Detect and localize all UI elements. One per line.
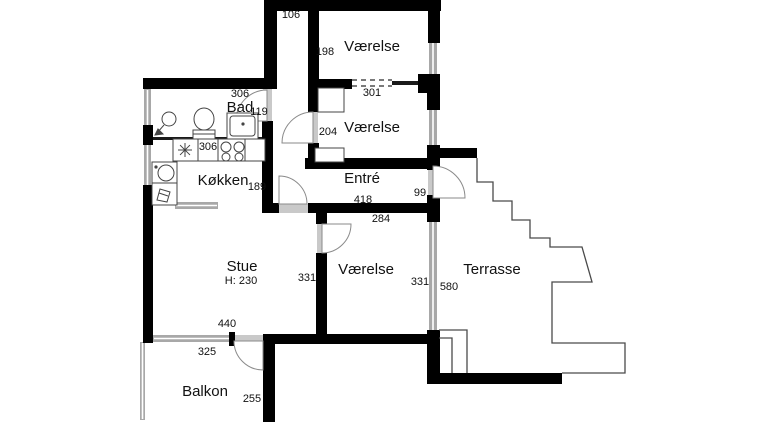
wall — [143, 185, 153, 343]
dimension-label: 198 — [316, 46, 334, 58]
door-threshold — [279, 204, 308, 213]
thin-wall — [392, 81, 418, 85]
room-label: Balkon — [182, 383, 228, 400]
bath-faucet-icon — [241, 122, 244, 125]
floor-plan-svg: VærelseVærelseBadKøkkenEntréStueH: 230Væ… — [0, 0, 768, 422]
dimension-label: 580 — [440, 281, 458, 293]
closet — [315, 148, 344, 162]
wall — [316, 213, 327, 224]
room-label: Køkken — [198, 172, 249, 189]
room-sublabel: H: 230 — [225, 275, 257, 287]
dimension-label: 119 — [250, 106, 268, 118]
closet — [318, 88, 344, 112]
wall — [428, 0, 440, 43]
room-label: Værelse — [344, 119, 400, 136]
dimension-label: 440 — [218, 318, 236, 330]
wall — [308, 89, 319, 112]
floor-plan-canvas: VærelseVærelseBadKøkkenEntréStueH: 230Væ… — [0, 0, 768, 422]
room-label: Værelse — [344, 38, 400, 55]
wall — [308, 8, 319, 80]
dimension-label: 204 — [319, 126, 337, 138]
dimension-label: 418 — [354, 194, 372, 206]
room-label: Stue — [227, 258, 258, 275]
dimension-label: 306 — [231, 88, 249, 100]
room-label: Entré — [344, 170, 380, 187]
dimension-label: 106 — [282, 9, 300, 21]
dimension-label: 331 — [411, 276, 429, 288]
wall — [263, 334, 433, 344]
wall — [143, 125, 153, 145]
dimension-label: 255 — [243, 393, 261, 405]
wall — [440, 148, 477, 158]
room-label: Terrasse — [463, 261, 521, 278]
kitchen-faucet-icon — [154, 165, 157, 168]
wall — [263, 334, 275, 422]
dimension-label: 301 — [363, 87, 381, 99]
dimension-label: 99 — [414, 187, 426, 199]
dimension-label: 325 — [198, 346, 216, 358]
wall — [264, 0, 277, 89]
wall — [427, 195, 440, 222]
dimension-label: 189 — [248, 181, 266, 193]
wall — [143, 78, 277, 89]
wall — [427, 75, 440, 110]
wall — [316, 253, 327, 334]
wall — [427, 373, 562, 384]
dimension-label: 331 — [298, 272, 316, 284]
dimension-label: 306 — [199, 141, 217, 153]
wall — [262, 203, 279, 213]
room-label: Værelse — [338, 261, 394, 278]
dimension-label: 284 — [372, 213, 390, 225]
